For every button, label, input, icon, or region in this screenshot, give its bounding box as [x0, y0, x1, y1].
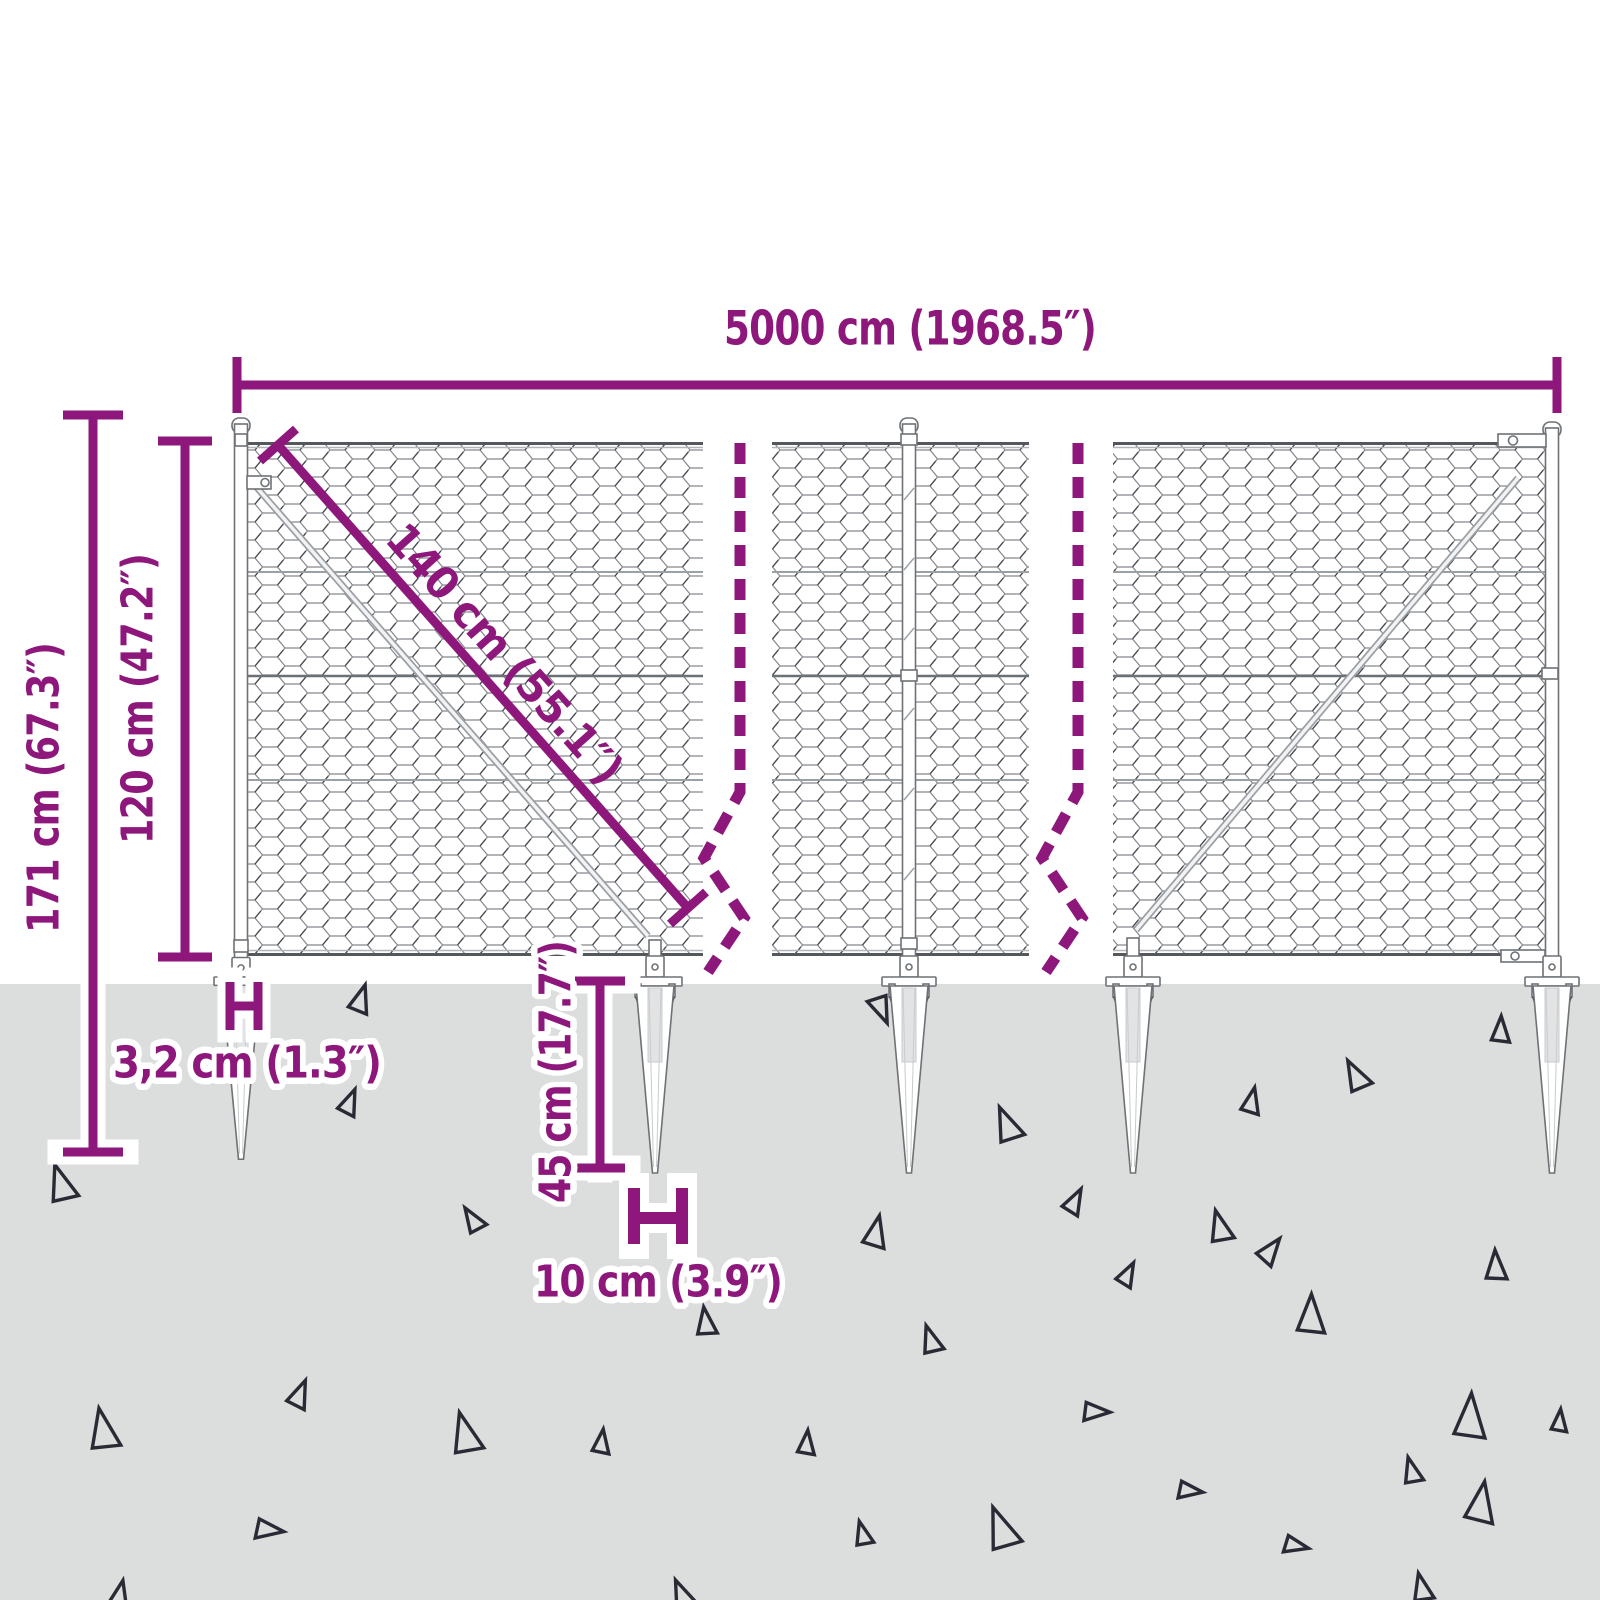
post-left — [235, 424, 248, 980]
post-right — [1546, 428, 1559, 980]
dim-post-width-label: 3,2 cm (1.3″) — [113, 1038, 381, 1089]
dim-total-height-label: 171 cm (67.3″) — [19, 643, 70, 933]
dim-total-width-label: 5000 cm (1968.5″) — [724, 302, 1096, 357]
fence-panel-middle — [772, 442, 1029, 956]
dim-spike-length-label: 45 cm (17.7″) — [531, 941, 582, 1203]
fence-panel-left — [237, 442, 703, 956]
tension-bracket-top — [1498, 434, 1546, 447]
tension-bracket-bottom — [1501, 950, 1545, 962]
dim-spike-width-label: 10 cm (3.9″) — [534, 1257, 782, 1308]
fence-dimension-diagram: 5000 cm (1968.5″) 171 cm (67.3″) 120 cm … — [0, 0, 1600, 1600]
mesh-middle-accents — [772, 442, 1029, 956]
post-middle — [903, 424, 916, 980]
dim-fence-height-label: 120 cm (47.2″) — [113, 554, 164, 844]
mesh-left-accents — [237, 442, 703, 956]
diagram-canvas: 5000 cm (1968.5″) 171 cm (67.3″) 120 cm … — [0, 0, 1600, 1600]
fence-panel-right — [1113, 442, 1545, 956]
